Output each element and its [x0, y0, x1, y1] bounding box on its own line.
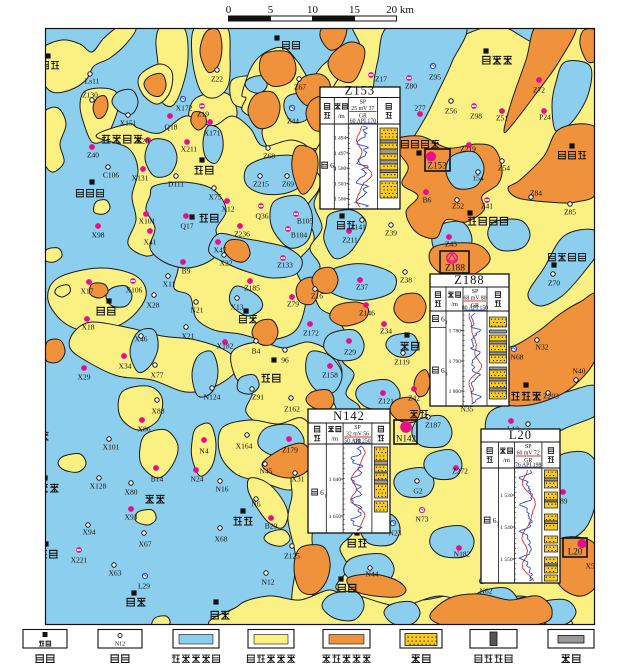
svg-text:Z79: Z79 — [287, 300, 299, 309]
svg-text:Z119: Z119 — [394, 358, 410, 367]
svg-text:X67: X67 — [139, 540, 152, 549]
svg-text:L20: L20 — [509, 428, 532, 442]
svg-text:SP: SP — [360, 100, 366, 106]
svg-text:X131: X131 — [132, 174, 149, 183]
svg-text:Z130: Z130 — [82, 91, 98, 100]
svg-text:X21: X21 — [182, 332, 195, 341]
svg-text:Z125: Z125 — [284, 552, 300, 561]
svg-text:Z40: Z40 — [87, 151, 99, 160]
svg-text:N32: N32 — [536, 343, 549, 352]
svg-text:Z42: Z42 — [408, 394, 420, 403]
svg-text:B14: B14 — [151, 475, 164, 484]
svg-text:Z187: Z187 — [425, 421, 441, 430]
svg-text:D111: D111 — [168, 180, 184, 189]
svg-text:X94: X94 — [83, 528, 96, 537]
svg-text:X151: X151 — [120, 119, 137, 128]
svg-text:X17: X17 — [81, 287, 94, 296]
svg-text:B104: B104 — [291, 231, 308, 240]
svg-text:X28: X28 — [147, 301, 160, 310]
svg-text:X80: X80 — [125, 488, 138, 497]
svg-text:X211: X211 — [181, 145, 198, 154]
svg-text:1 506: 1 506 — [334, 197, 347, 203]
svg-text:Z38: Z38 — [400, 276, 412, 285]
svg-text:Z34: Z34 — [380, 327, 392, 336]
svg-text:B6: B6 — [423, 196, 432, 205]
svg-text:Z91: Z91 — [252, 393, 264, 402]
svg-text:SP: SP — [354, 425, 360, 431]
svg-text:/m: /m — [338, 113, 345, 120]
svg-text:Z203: Z203 — [543, 392, 559, 401]
svg-text:P24: P24 — [539, 113, 551, 122]
svg-text:1 503: 1 503 — [334, 181, 347, 187]
svg-text:X11: X11 — [163, 280, 176, 289]
svg-text:B9: B9 — [182, 267, 191, 276]
svg-text:SP: SP — [525, 444, 531, 450]
svg-text:154: 154 — [472, 174, 484, 183]
svg-text:Z51: Z51 — [496, 114, 508, 123]
svg-text:X34: X34 — [119, 362, 132, 371]
svg-text:Z98: Z98 — [470, 112, 482, 121]
svg-text:1 540: 1 540 — [500, 525, 513, 531]
svg-text:Z158: Z158 — [322, 371, 338, 380]
svg-text:Z43: Z43 — [445, 240, 457, 249]
svg-text:1 650: 1 650 — [329, 514, 342, 520]
svg-text:N6: N6 — [251, 500, 260, 509]
svg-text:X31: X31 — [292, 475, 305, 484]
svg-text:Z211: Z211 — [342, 236, 358, 245]
svg-text:N142: N142 — [333, 409, 365, 423]
svg-text:Z37: Z37 — [356, 283, 368, 292]
svg-text:N24: N24 — [191, 475, 204, 484]
svg-text:1 780: 1 780 — [449, 329, 462, 335]
svg-text:Z153: Z153 — [428, 161, 447, 171]
svg-text:Z153: Z153 — [345, 84, 375, 98]
svg-text:N182: N182 — [454, 550, 471, 559]
svg-text:1 500: 1 500 — [334, 166, 347, 172]
svg-text:/m: /m — [331, 436, 338, 443]
svg-text:Z69: Z69 — [282, 180, 294, 189]
svg-text:X68: X68 — [215, 535, 228, 544]
svg-text:0: 0 — [226, 4, 232, 16]
svg-text:N124: N124 — [204, 393, 221, 402]
svg-text:N40: N40 — [573, 367, 586, 376]
svg-text:1 640: 1 640 — [329, 477, 342, 483]
svg-text:N68: N68 — [511, 353, 524, 362]
svg-text:Z179: Z179 — [282, 446, 298, 455]
svg-text:X12: X12 — [222, 205, 235, 214]
svg-text:X86: X86 — [138, 425, 151, 434]
svg-text:Z85: Z85 — [564, 208, 576, 217]
svg-text:1 497: 1 497 — [334, 151, 347, 157]
svg-text:Z172: Z172 — [303, 329, 319, 338]
svg-text:X88: X88 — [152, 407, 165, 416]
svg-text:1 790: 1 790 — [449, 359, 462, 365]
svg-text:L29: L29 — [138, 582, 150, 591]
svg-text:Z133: Z133 — [277, 261, 293, 270]
svg-text:Z17: Z17 — [375, 75, 387, 84]
svg-text:Z19: Z19 — [197, 110, 209, 119]
svg-text:Z70: Z70 — [548, 279, 560, 288]
svg-text:Z16: Z16 — [311, 292, 323, 301]
svg-text:N142: N142 — [396, 434, 416, 444]
svg-text:Z236: Z236 — [234, 230, 250, 239]
svg-text:N21: N21 — [191, 306, 204, 315]
svg-text:X172: X172 — [176, 104, 193, 113]
svg-text:N12: N12 — [115, 642, 125, 648]
svg-text:Q18: Q18 — [165, 123, 178, 132]
svg-text:L20: L20 — [568, 547, 583, 557]
svg-text:X128: X128 — [90, 482, 107, 491]
svg-text:N45: N45 — [260, 467, 273, 476]
svg-text:C106: C106 — [103, 171, 120, 180]
svg-text:X75: X75 — [209, 193, 222, 202]
svg-text:Z39: Z39 — [385, 229, 397, 238]
svg-text:B4: B4 — [252, 347, 261, 356]
svg-text:X93: X93 — [125, 513, 138, 522]
svg-text:Z141: Z141 — [350, 223, 366, 232]
svg-text:Z44: Z44 — [287, 117, 299, 126]
svg-text:Z146: Z146 — [359, 309, 375, 318]
svg-text:/m: /m — [503, 457, 510, 464]
svg-text:N16: N16 — [216, 485, 229, 494]
svg-text:Z219: Z219 — [460, 145, 476, 154]
svg-text:Z54: Z54 — [498, 164, 510, 173]
svg-text:20 km: 20 km — [386, 4, 414, 16]
svg-text:X41: X41 — [144, 238, 157, 247]
svg-text:X13: X13 — [231, 303, 244, 312]
svg-text:X101: X101 — [139, 217, 156, 226]
svg-text:Z41: Z41 — [481, 202, 493, 211]
svg-text:1 800: 1 800 — [449, 389, 462, 395]
svg-text:N62: N62 — [480, 587, 493, 596]
svg-text:Q17: Q17 — [181, 222, 194, 231]
svg-text:Z162: Z162 — [284, 405, 300, 414]
svg-text:X182: X182 — [217, 342, 234, 351]
svg-text:15: 15 — [349, 4, 361, 16]
svg-text:Z22: Z22 — [211, 75, 223, 84]
svg-text:1 550: 1 550 — [500, 557, 513, 563]
svg-text:5: 5 — [268, 4, 274, 16]
svg-text:Z95: Z95 — [429, 73, 441, 82]
svg-text:X221: X221 — [71, 556, 88, 565]
svg-text:Z84: Z84 — [530, 189, 542, 198]
svg-text:Z67: Z67 — [294, 83, 306, 92]
svg-text:1 494: 1 494 — [334, 136, 347, 142]
svg-text:X46: X46 — [135, 335, 148, 344]
svg-text:N12: N12 — [262, 578, 275, 587]
svg-text:Z272: Z272 — [452, 467, 468, 476]
svg-text:/m: /m — [451, 301, 458, 308]
svg-text:277: 277 — [414, 104, 426, 113]
svg-text:X106: X106 — [126, 286, 143, 295]
svg-text:1 530: 1 530 — [500, 493, 513, 499]
svg-text:X77: X77 — [151, 371, 164, 380]
svg-text:Z188: Z188 — [445, 264, 465, 274]
svg-text:Ls11: Ls11 — [85, 77, 100, 86]
svg-text:Z188: Z188 — [454, 273, 484, 287]
svg-text:Z185: Z185 — [244, 284, 260, 293]
svg-text:Z121: Z121 — [378, 397, 394, 406]
svg-text:B29: B29 — [265, 522, 278, 531]
svg-text:Z29: Z29 — [344, 348, 356, 357]
svg-text:SP: SP — [472, 289, 478, 295]
svg-text:N4: N4 — [199, 447, 208, 456]
svg-text:Z72: Z72 — [533, 86, 545, 95]
svg-text:X98: X98 — [92, 231, 105, 240]
svg-text:X18: X18 — [82, 323, 95, 332]
svg-text:Z80: Z80 — [405, 82, 417, 91]
svg-text:Z56: Z56 — [445, 107, 457, 116]
svg-text:Z215: Z215 — [253, 180, 269, 189]
svg-text:N73: N73 — [416, 515, 429, 524]
svg-text:N44: N44 — [366, 570, 379, 579]
svg-text:96: 96 — [281, 356, 289, 365]
svg-text:B105: B105 — [297, 217, 314, 226]
svg-text:X171: X171 — [204, 129, 221, 138]
svg-text:G2: G2 — [413, 487, 422, 496]
svg-text:X101: X101 — [103, 443, 120, 452]
svg-text:Z52: Z52 — [452, 202, 464, 211]
svg-text:X22: X22 — [220, 259, 233, 268]
svg-text:X29: X29 — [78, 373, 91, 382]
svg-text:X63: X63 — [109, 569, 122, 578]
svg-text:Z68: Z68 — [263, 152, 275, 161]
svg-text:Q36: Q36 — [256, 212, 269, 221]
svg-text:10: 10 — [307, 4, 319, 16]
svg-text:X164: X164 — [236, 442, 253, 451]
